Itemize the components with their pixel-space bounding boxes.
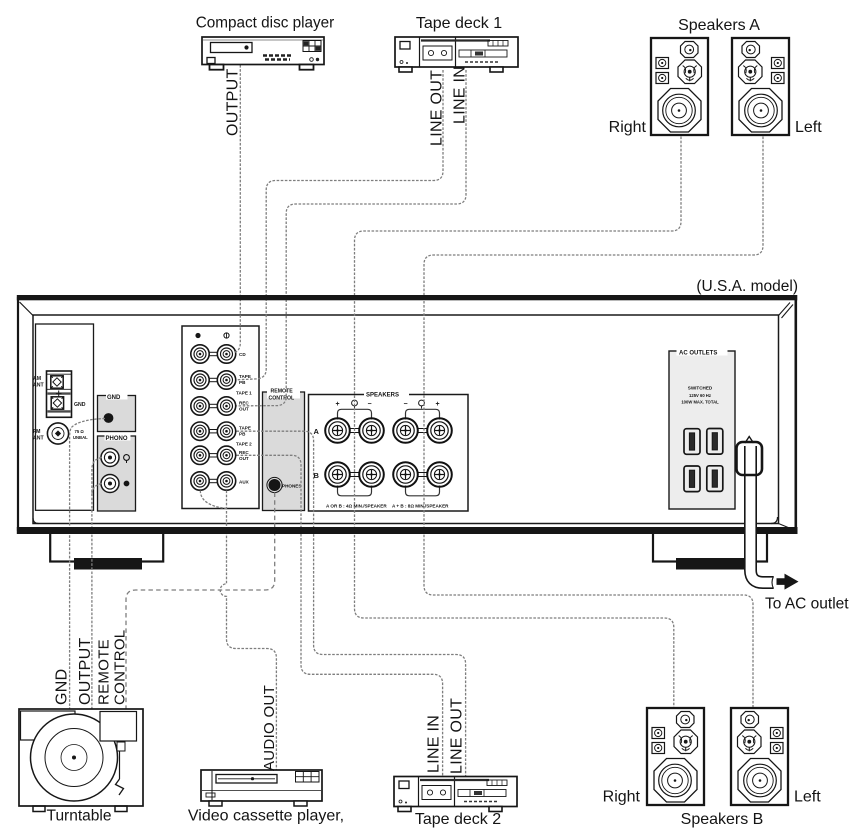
svg-text:LINE IN: LINE IN: [426, 715, 443, 773]
svg-text:Tape deck 2: Tape deck 2: [415, 811, 501, 828]
svg-text:TAPE: TAPE: [239, 374, 251, 379]
svg-text:REMOTE: REMOTE: [271, 389, 294, 395]
svg-text:A: A: [314, 427, 320, 436]
svg-text:ANT: ANT: [33, 436, 44, 442]
svg-text:LINE OUT: LINE OUT: [429, 70, 446, 146]
svg-text:CD: CD: [239, 352, 246, 357]
svg-text:100W MAX. TOTAL: 100W MAX. TOTAL: [681, 400, 719, 405]
svg-text:UNBAL: UNBAL: [73, 435, 88, 440]
svg-text:OUTPUT: OUTPUT: [225, 68, 242, 136]
svg-text:ANT: ANT: [33, 383, 44, 389]
svg-text:GND: GND: [54, 669, 71, 705]
svg-text:Turntable: Turntable: [47, 808, 112, 825]
svg-text:PB: PB: [239, 432, 246, 437]
svg-text:AC OUTLETS: AC OUTLETS: [679, 351, 717, 357]
svg-text:Left: Left: [795, 119, 822, 136]
svg-text:PHONES: PHONES: [282, 484, 301, 489]
svg-text:AUX: AUX: [239, 480, 250, 485]
svg-text:Speakers A: Speakers A: [678, 17, 760, 34]
svg-text:TAPE 1: TAPE 1: [236, 391, 252, 396]
svg-text:TAPE: TAPE: [239, 426, 251, 431]
svg-text:AUDIO OUT: AUDIO OUT: [261, 685, 278, 771]
svg-text:SPEAKERS: SPEAKERS: [366, 393, 399, 399]
svg-text:CONTROL: CONTROL: [112, 630, 129, 705]
svg-text:LINE OUT: LINE OUT: [449, 698, 466, 774]
svg-text:REMOTE: REMOTE: [96, 639, 113, 705]
svg-text:Right: Right: [609, 119, 647, 136]
svg-text:SWITCHED: SWITCHED: [688, 386, 713, 391]
svg-text:(U.S.A. model): (U.S.A. model): [696, 278, 798, 295]
svg-text:OUT: OUT: [239, 407, 249, 412]
svg-text:REC: REC: [239, 450, 249, 455]
svg-text:Compact disc player: Compact disc player: [196, 15, 335, 32]
svg-text:PHONO: PHONO: [106, 436, 128, 442]
svg-text:+: +: [335, 401, 339, 408]
svg-text:CONTROL: CONTROL: [269, 396, 295, 402]
svg-text:−: −: [367, 401, 371, 408]
svg-text:A OR B : 4Ω MIN./SPEAKER: A OR B : 4Ω MIN./SPEAKER: [326, 504, 387, 509]
svg-text:OUTPUT: OUTPUT: [77, 637, 94, 705]
svg-text:+: +: [435, 401, 439, 408]
svg-text:GND: GND: [107, 395, 121, 401]
svg-text:PB: PB: [239, 380, 246, 385]
svg-text:LINE IN: LINE IN: [452, 66, 469, 124]
svg-text:A + B : 8Ω MIN./SPEAKER: A + B : 8Ω MIN./SPEAKER: [392, 504, 449, 509]
svg-text:−: −: [403, 401, 407, 408]
svg-text:AM: AM: [33, 376, 41, 382]
svg-text:B: B: [314, 471, 320, 480]
svg-text:Video cassette player,: Video cassette player,: [188, 808, 344, 825]
svg-text:Left: Left: [794, 789, 821, 806]
svg-text:75 Ω: 75 Ω: [75, 429, 85, 434]
svg-text:TAPE 2: TAPE 2: [236, 442, 252, 447]
svg-text:FM: FM: [33, 429, 41, 435]
svg-text:Right: Right: [603, 789, 641, 806]
svg-text:To AC outlet: To AC outlet: [765, 596, 849, 613]
svg-text:Tape deck 1: Tape deck 1: [416, 15, 502, 32]
svg-text:OUT: OUT: [239, 456, 249, 461]
svg-text:REC: REC: [239, 401, 249, 406]
svg-text:125V 60 Hz: 125V 60 Hz: [689, 393, 711, 398]
svg-text:Speakers B: Speakers B: [681, 811, 764, 828]
svg-text:GND: GND: [74, 402, 86, 408]
